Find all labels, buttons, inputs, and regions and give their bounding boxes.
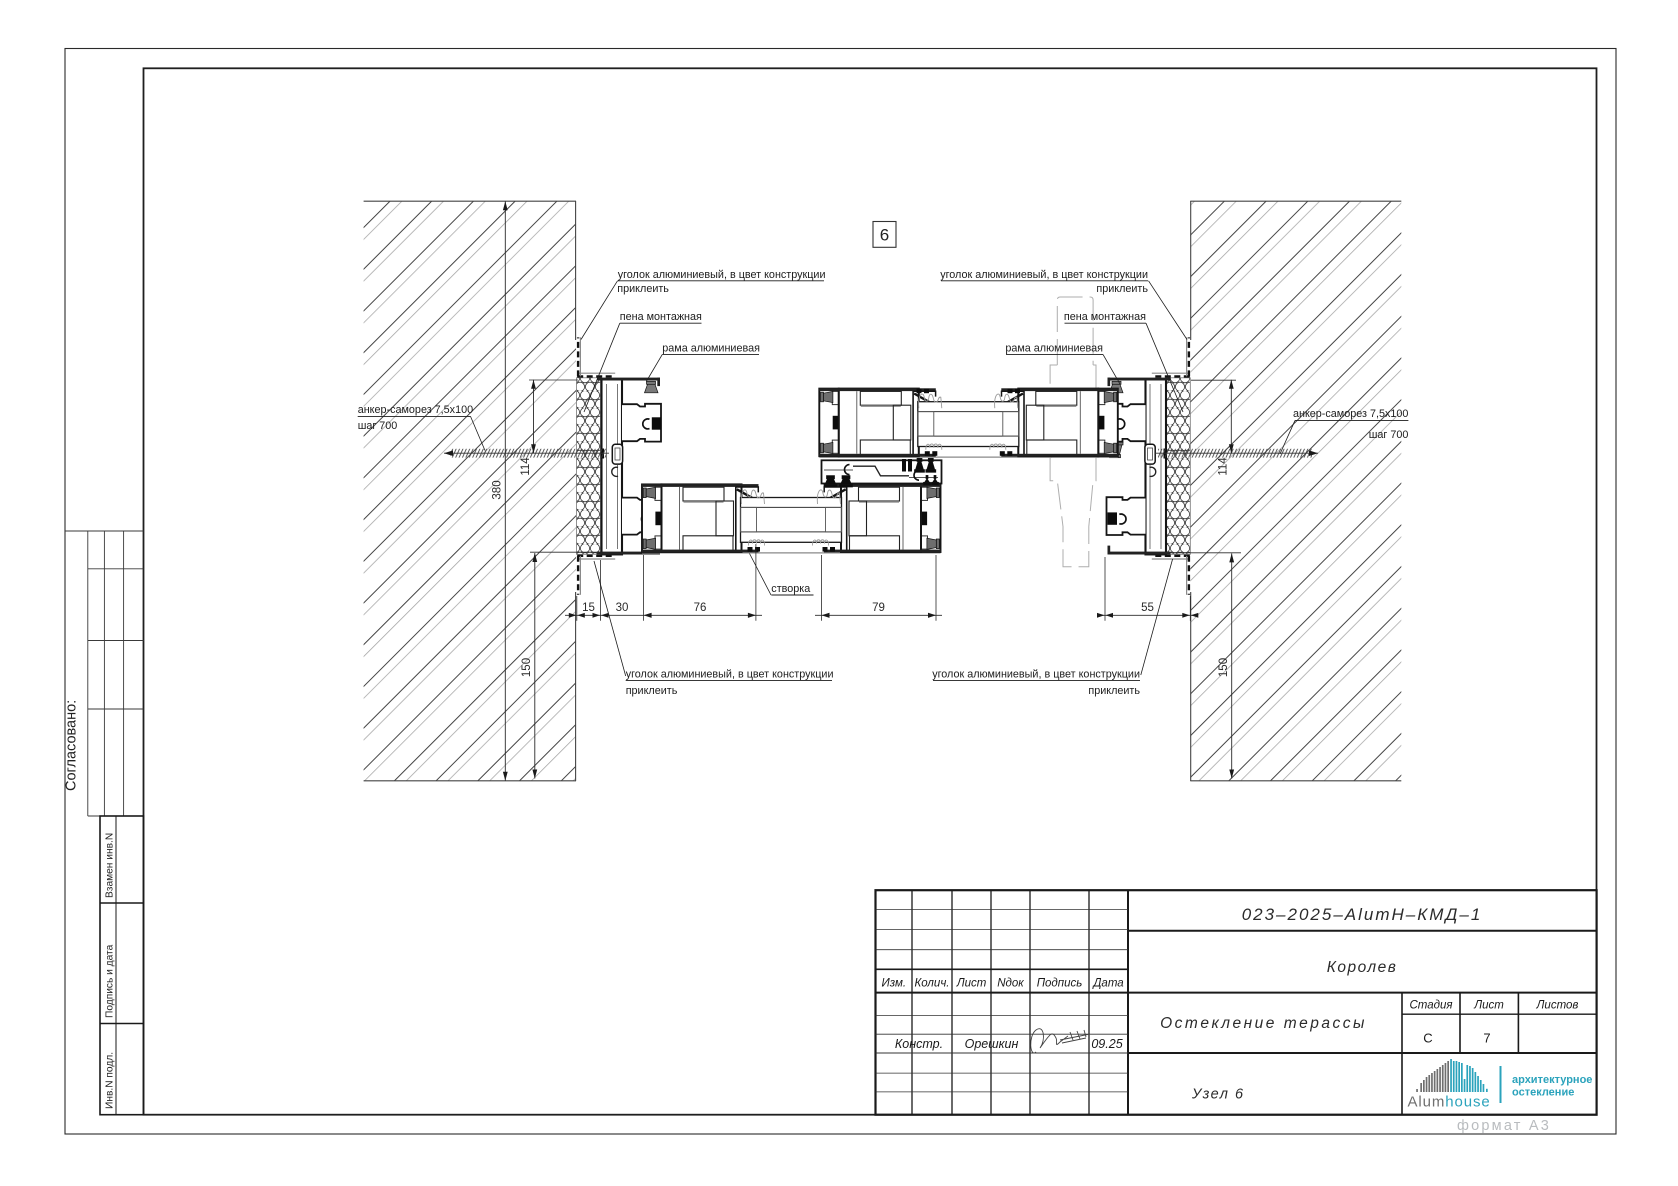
svg-text:приклеить: приклеить	[1088, 685, 1140, 697]
svg-text:Узел 6: Узел 6	[1191, 1087, 1245, 1103]
svg-text:приклеить: приклеить	[617, 283, 669, 295]
svg-text:остекление: остекление	[1512, 1087, 1574, 1099]
svg-text:шаг 700: шаг 700	[1369, 429, 1409, 441]
svg-text:формат А3: формат А3	[1457, 1118, 1551, 1134]
svg-text:Изм.: Изм.	[882, 978, 907, 990]
svg-text:шаг 700: шаг 700	[358, 420, 398, 432]
svg-text:уголок алюминиевый, в цвет кон: уголок алюминиевый, в цвет конструкции	[932, 669, 1140, 681]
svg-text:09.25: 09.25	[1091, 1037, 1122, 1051]
svg-text:Остекление терассы: Остекление терассы	[1160, 1015, 1367, 1032]
svg-text:анкер-саморез 7,5х100: анкер-саморез 7,5х100	[1293, 408, 1408, 420]
svg-text:30: 30	[616, 602, 629, 614]
svg-text:76: 76	[694, 602, 707, 614]
svg-text:023–2025–AlumH–КМД–1: 023–2025–AlumH–КМД–1	[1242, 905, 1483, 924]
svg-text:Королев: Королев	[1327, 959, 1398, 976]
svg-text:уголок алюминиевый, в цвет кон: уголок алюминиевый, в цвет конструкции	[618, 269, 826, 281]
svg-text:пена монтажная: пена монтажная	[620, 311, 702, 323]
svg-text:Взамен инв.N: Взамен инв.N	[105, 833, 116, 898]
svg-text:уголок алюминиевый, в цвет кон: уголок алюминиевый, в цвет конструкции	[626, 669, 834, 681]
svg-text:15: 15	[582, 602, 595, 614]
svg-text:анкер-саморез 7,5х100: анкер-саморез 7,5х100	[358, 404, 473, 416]
svg-text:150: 150	[1218, 658, 1230, 677]
svg-text:рама алюминиевая: рама алюминиевая	[662, 343, 760, 355]
svg-text:Констр.: Констр.	[895, 1037, 943, 1051]
svg-text:створка: створка	[771, 583, 810, 595]
svg-text:приклеить: приклеить	[1096, 283, 1148, 295]
svg-text:114: 114	[1218, 457, 1230, 476]
svg-text:Alumhouse: Alumhouse	[1408, 1094, 1491, 1111]
svg-text:пена монтажная: пена монтажная	[1064, 311, 1146, 323]
svg-text:79: 79	[872, 602, 885, 614]
svg-text:Лист: Лист	[956, 978, 987, 990]
svg-text:рама алюминиевая: рама алюминиевая	[1005, 343, 1103, 355]
svg-text:С: С	[1423, 1031, 1432, 1046]
svg-text:Согласовано:: Согласовано:	[64, 700, 80, 791]
svg-text:Колич.: Колич.	[915, 978, 950, 990]
svg-text:Инв.N подл.: Инв.N подл.	[105, 1052, 116, 1109]
svg-text:приклеить: приклеить	[626, 685, 678, 697]
svg-text:уголок алюминиевый, в цвет кон: уголок алюминиевый, в цвет конструкции	[940, 269, 1148, 281]
svg-text:55: 55	[1141, 602, 1154, 614]
svg-text:380: 380	[492, 480, 504, 499]
svg-text:архитектурное: архитектурное	[1512, 1074, 1592, 1086]
svg-text:Подпись и дата: Подпись и дата	[105, 944, 116, 1018]
svg-text:Листов: Листов	[1536, 1000, 1579, 1012]
svg-text:7: 7	[1483, 1031, 1490, 1046]
svg-text:114: 114	[520, 457, 532, 476]
svg-text:Лист: Лист	[1473, 1000, 1504, 1012]
svg-text:Орешкин: Орешкин	[965, 1037, 1019, 1051]
svg-text:150: 150	[521, 658, 533, 677]
svg-text:Стадия: Стадия	[1409, 1000, 1452, 1012]
svg-text:6: 6	[880, 226, 889, 245]
svg-text:Дата: Дата	[1091, 978, 1123, 990]
svg-text:Подпись: Подпись	[1037, 978, 1083, 990]
svg-text:Nдок: Nдок	[997, 978, 1024, 990]
